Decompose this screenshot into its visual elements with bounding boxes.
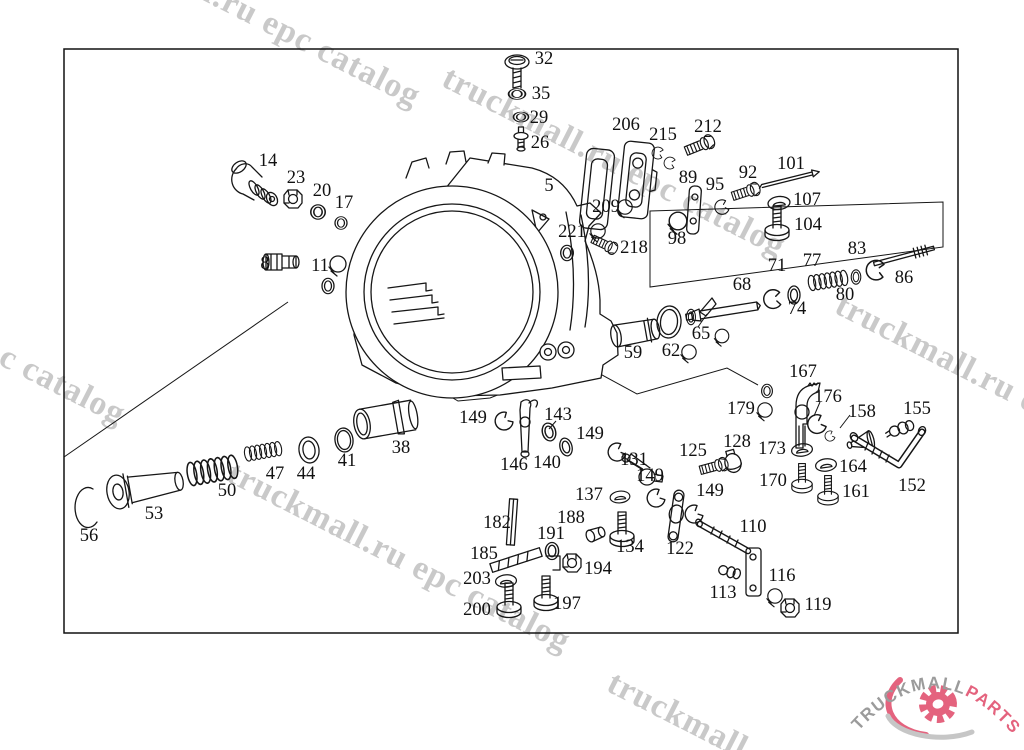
part-label-23: 23 [287, 168, 306, 188]
part-44-oring [297, 436, 320, 465]
part-label-113: 113 [709, 583, 736, 603]
part-92-bolt [730, 181, 761, 203]
part-11-washer [322, 278, 334, 293]
part-65-seal [687, 309, 696, 324]
part-23-nut [284, 190, 302, 208]
part-label-32: 32 [535, 49, 554, 69]
part-label-56: 56 [80, 526, 99, 546]
part-107-washer [767, 195, 790, 210]
part-80-washer [851, 270, 861, 284]
part-label-158: 158 [848, 402, 876, 422]
part-155-screw [884, 419, 915, 440]
part-label-179: 179 [727, 399, 755, 419]
part-label-176: 176 [814, 387, 842, 407]
part-label-221: 221 [558, 222, 586, 242]
part-5-transmission-housing [346, 151, 618, 398]
part-label-209: 209 [592, 197, 620, 217]
part-label-29: 29 [530, 108, 549, 128]
part-label-38: 38 [392, 438, 411, 458]
part-161-bolt [818, 476, 838, 505]
part-label-128: 128 [723, 432, 751, 452]
watermark-text: truckmall.ru epc catalog [601, 664, 956, 750]
part-170-bolt [792, 464, 812, 493]
part-label-185: 185 [470, 544, 498, 564]
part-label-134: 134 [616, 537, 644, 557]
part-label-86: 86 [895, 268, 914, 288]
part-label-5: 5 [544, 176, 553, 196]
part-label-107: 107 [793, 190, 821, 210]
part-label-98: 98 [668, 229, 687, 249]
part-label-53: 53 [145, 504, 164, 524]
part-194-nut [563, 554, 581, 572]
part-label-59: 59 [624, 343, 643, 363]
part-label-71: 71 [768, 256, 787, 276]
part-label-140: 140 [533, 453, 561, 473]
part-188-plug [585, 525, 607, 543]
part-68-rod [685, 300, 761, 324]
part-38-sleeve [351, 398, 420, 443]
part-label-14: 14 [259, 151, 278, 171]
part-32-screw [505, 55, 529, 88]
part-label-95: 95 [706, 175, 725, 195]
part-179-washer [762, 384, 773, 398]
part-label-68: 68 [733, 275, 752, 295]
part-label-149: 149 [576, 424, 604, 444]
part-label-155: 155 [903, 399, 931, 419]
part-203-washer [495, 574, 517, 588]
part-113-screw [717, 564, 741, 580]
part-label-149: 149 [459, 408, 487, 428]
part-41-oring [333, 427, 354, 453]
watermark-text: truckmall.ru epc catalog [0, 227, 132, 432]
part-label-137: 137 [575, 485, 603, 505]
part-label-65: 65 [692, 324, 711, 344]
part-label-35: 35 [532, 84, 551, 104]
part-label-92: 92 [739, 163, 758, 183]
part-label-80: 80 [836, 285, 855, 305]
part-71-clip [764, 290, 781, 309]
part-label-143: 143 [544, 405, 572, 425]
part-label-89: 89 [679, 168, 698, 188]
part-label-164: 164 [839, 457, 867, 477]
watermark-text: truckmall.ru epc catalog [221, 454, 576, 659]
part-20-washer [311, 205, 325, 219]
part-149-clip [492, 410, 515, 434]
part-label-41: 41 [338, 451, 357, 471]
part-label-44: 44 [297, 464, 316, 484]
part-label-50: 50 [218, 481, 237, 501]
part-label-77: 77 [803, 251, 822, 271]
part-65-cone [700, 298, 716, 316]
part-label-26: 26 [531, 133, 550, 153]
part-179-clamp [757, 403, 772, 421]
part-62-clamp [681, 345, 696, 363]
part-176-clip [805, 413, 827, 436]
part-191-grommet [545, 542, 558, 559]
part-label-149: 149 [696, 481, 724, 501]
part-label-188: 188 [557, 508, 585, 528]
part-17-washer [335, 217, 347, 230]
part-label-101: 101 [777, 154, 805, 174]
part-label-197: 197 [553, 594, 581, 614]
part-label-83: 83 [848, 239, 867, 259]
part-label-11: 11 [311, 256, 329, 276]
part-label-62: 62 [662, 341, 681, 361]
exploded-parts-diagram: truckmall.ru epc catalogtruckmall.ru epc… [0, 0, 1024, 750]
part-label-200: 200 [463, 600, 491, 620]
part-122-lever [665, 489, 686, 542]
part-47-spring [243, 441, 282, 462]
parts-catalog-page: truckmall.ru epc catalogtruckmall.ru epc… [0, 0, 1024, 750]
part-label-182: 182 [483, 513, 511, 533]
part-label-146: 146 [500, 455, 528, 475]
part-164-washer [815, 457, 837, 472]
part-label-20: 20 [313, 181, 332, 201]
part-119-nut [781, 599, 799, 617]
part-label-215: 215 [649, 125, 677, 145]
part-label-104: 104 [794, 215, 822, 235]
part-176-clip-small [824, 430, 836, 443]
part-label-152: 152 [898, 476, 926, 496]
part-label-47: 47 [266, 464, 285, 484]
part-label-17: 17 [335, 193, 354, 213]
part-56-snap-ring [75, 487, 97, 527]
part-label-170: 170 [759, 471, 787, 491]
part-label-116: 116 [768, 566, 795, 586]
part-label-74: 74 [788, 299, 807, 319]
part-label-161: 161 [842, 482, 870, 502]
part-label-194: 194 [584, 559, 612, 579]
part-149-clip [644, 487, 666, 510]
part-116-grommet [767, 589, 782, 607]
part-label-119: 119 [804, 595, 831, 615]
part-label-149: 149 [636, 466, 664, 486]
part-label-8: 8 [260, 254, 269, 274]
truckmall-logo: TRUCKMALLPARTS [848, 673, 1024, 737]
part-label-206: 206 [612, 115, 640, 135]
part-label-125: 125 [679, 441, 707, 461]
part-label-203: 203 [463, 569, 491, 589]
part-label-173: 173 [758, 439, 786, 459]
part-label-218: 218 [620, 238, 648, 258]
part-label-122: 122 [666, 539, 694, 559]
part-173-washer [791, 442, 813, 457]
part-11-clamp [329, 256, 346, 276]
part-label-110: 110 [739, 517, 766, 537]
part-146-strap [520, 400, 537, 457]
part-label-167: 167 [789, 362, 817, 382]
watermark-text: truckmall.ru epc catalog [71, 0, 426, 115]
part-label-212: 212 [694, 117, 722, 137]
part-65-clamp [714, 329, 728, 346]
part-137-washer [610, 490, 631, 504]
